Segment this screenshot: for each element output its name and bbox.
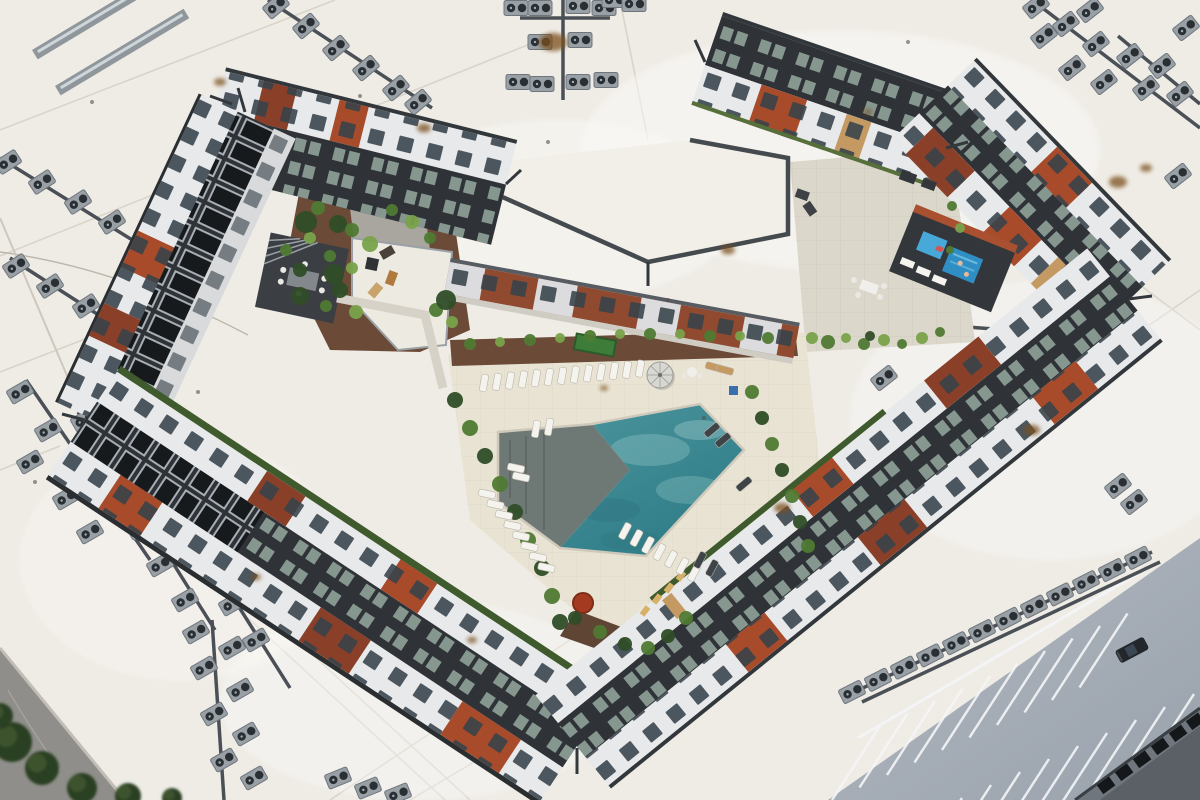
shrub: [293, 263, 307, 277]
shrub: [615, 329, 625, 339]
roof-vent: [906, 40, 910, 44]
shrub: [295, 211, 317, 233]
shrub: [477, 448, 493, 464]
hvac-fan-hub: [572, 81, 574, 83]
shrub: [806, 332, 818, 344]
roof-vent: [358, 94, 362, 98]
shrub: [584, 330, 596, 342]
tree-foliage-highlight: [164, 790, 175, 800]
hvac-fan: [582, 36, 590, 44]
shrub: [745, 385, 759, 399]
shrub: [424, 232, 436, 244]
shrub: [324, 264, 344, 284]
pool-towel-bin: [729, 386, 738, 395]
shrub: [555, 333, 565, 343]
shrub: [916, 332, 928, 344]
shrub: [675, 329, 685, 339]
hvac-fan-hub: [534, 41, 536, 43]
tree-canopy: [25, 751, 59, 785]
hvac-fan-hub: [574, 39, 576, 41]
shrub: [793, 515, 807, 529]
tree-foliage-highlight: [117, 785, 131, 799]
shrub: [405, 215, 419, 229]
hvac-unit: [568, 33, 592, 48]
shrub: [593, 625, 607, 639]
shrub: [362, 236, 378, 252]
shrub: [346, 262, 358, 274]
shrub: [386, 204, 398, 216]
hvac-fan-hub: [510, 7, 512, 9]
hvac-fan-hub: [512, 81, 514, 83]
shrub: [865, 331, 875, 341]
shrub: [946, 246, 954, 254]
shrub: [329, 215, 347, 233]
shrub: [332, 282, 348, 298]
roof-stain: [721, 245, 735, 254]
roof-stain: [539, 33, 567, 51]
roof-stain: [467, 637, 477, 644]
roof-vent: [196, 390, 200, 394]
shrub: [935, 327, 945, 337]
shrub: [552, 614, 568, 630]
shrub: [436, 290, 456, 310]
shrub: [568, 611, 582, 625]
tree-foliage-highlight: [69, 775, 86, 792]
shrub: [644, 328, 656, 340]
shrub: [775, 463, 789, 477]
roof-stain: [1024, 425, 1040, 435]
hvac-fan-hub: [536, 83, 538, 85]
hvac-unit: [566, 0, 590, 14]
shrub: [311, 201, 325, 215]
roof-vent: [90, 100, 94, 104]
hvac-unit: [622, 0, 646, 12]
hvac-fan: [520, 78, 528, 86]
shrub: [785, 489, 799, 503]
hvac-unit: [504, 1, 528, 16]
shrub: [641, 641, 655, 655]
shrub: [345, 223, 359, 237]
shrub: [897, 339, 907, 349]
scene-svg: [0, 0, 1200, 800]
tree-foliage-highlight: [28, 754, 47, 773]
shrub: [821, 335, 835, 349]
shrub: [492, 476, 508, 492]
shrub: [801, 539, 815, 553]
hvac-unit: [566, 75, 590, 90]
hvac-fan-hub: [572, 5, 574, 7]
shrub: [280, 244, 292, 256]
roof-stain: [251, 574, 261, 581]
roof-vent: [33, 480, 37, 484]
roof-stain: [417, 123, 431, 132]
shrub: [735, 331, 745, 341]
roof-vent: [702, 416, 706, 420]
shrub: [462, 420, 478, 436]
hvac-fan-hub: [628, 3, 630, 5]
hvac-fan-hub: [534, 7, 536, 9]
hvac-fan-hub: [598, 7, 600, 9]
hvac-fan: [608, 76, 616, 84]
shrub: [447, 392, 463, 408]
shrub: [524, 334, 536, 346]
shrub: [446, 316, 458, 328]
hvac-fan-hub: [600, 79, 602, 81]
shrub: [304, 232, 316, 244]
shrub: [841, 333, 851, 343]
shrub: [291, 287, 309, 305]
shrub: [679, 611, 693, 625]
roof-vent: [666, 298, 670, 302]
roof-stain: [600, 385, 608, 390]
hvac-fan: [542, 4, 550, 12]
hvac-fan: [518, 4, 526, 12]
shrub: [618, 637, 632, 651]
shrub: [464, 338, 476, 350]
shrub: [661, 629, 675, 643]
red-round-table: [573, 593, 593, 613]
hvac-fan: [544, 80, 552, 88]
hvac-fan: [580, 2, 588, 10]
shrub: [765, 437, 779, 451]
shrub: [495, 337, 505, 347]
roof-stain: [774, 503, 790, 513]
shrub: [947, 201, 957, 211]
hvac-unit: [528, 1, 552, 16]
shrub: [324, 250, 336, 262]
roof-vent: [546, 140, 550, 144]
hvac-unit: [530, 77, 554, 92]
shrub: [955, 223, 965, 233]
shrub: [320, 300, 332, 312]
shrub: [755, 411, 769, 425]
shrub: [349, 305, 363, 319]
hvac-fan: [636, 0, 644, 8]
shrub: [762, 332, 774, 344]
roof-stain: [1140, 164, 1152, 172]
roof-stain: [864, 109, 872, 114]
hvac-fan: [580, 78, 588, 86]
shrub: [878, 334, 890, 346]
roof-stain: [1109, 176, 1127, 188]
roof-stain: [214, 78, 226, 86]
aerial-photo: Aerial drone view of a U-shaped apartmen…: [0, 0, 1200, 800]
shrub: [704, 330, 716, 342]
shrub: [544, 588, 560, 604]
hvac-unit: [594, 73, 618, 88]
hvac-unit: [506, 75, 530, 90]
